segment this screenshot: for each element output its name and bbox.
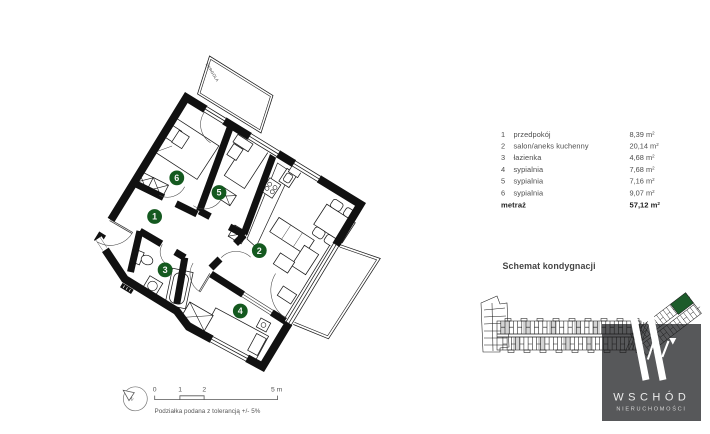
svg-text:20,14 m2: 20,14 m2 <box>630 142 660 151</box>
svg-text:Schemat kondygnacji: Schemat kondygnacji <box>503 261 596 271</box>
svg-text:5: 5 <box>501 177 505 186</box>
svg-text:9,07 m2: 9,07 m2 <box>630 188 656 197</box>
svg-text:1: 1 <box>152 212 157 222</box>
svg-text:sypialnia: sypialnia <box>514 165 544 174</box>
svg-text:Podziałka podana z tolerancją: Podziałka podana z tolerancją +/- 5% <box>155 408 261 415</box>
svg-text:3: 3 <box>163 265 168 275</box>
svg-text:1: 1 <box>178 386 182 393</box>
svg-text:NIERUCHOMOŚCI: NIERUCHOMOŚCI <box>616 405 686 413</box>
svg-text:6: 6 <box>174 173 179 183</box>
svg-text:łazienka: łazienka <box>514 153 543 162</box>
svg-text:4: 4 <box>501 165 505 174</box>
svg-text:sypialnia: sypialnia <box>514 188 544 197</box>
svg-text:6: 6 <box>501 188 505 197</box>
svg-text:1: 1 <box>501 130 505 139</box>
svg-text:8,39 m2: 8,39 m2 <box>630 130 656 139</box>
svg-text:7,68 m2: 7,68 m2 <box>630 165 656 174</box>
svg-text:przedpokój: przedpokój <box>514 130 551 139</box>
svg-text:57,12 m2: 57,12 m2 <box>630 201 661 210</box>
svg-text:salon/aneks kuchenny: salon/aneks kuchenny <box>514 142 589 151</box>
svg-text:4,68 m2: 4,68 m2 <box>630 153 656 162</box>
svg-text:WSCHÓD: WSCHÓD <box>613 391 690 404</box>
svg-text:2: 2 <box>202 386 206 393</box>
svg-text:4: 4 <box>238 306 243 316</box>
svg-text:5 m: 5 m <box>271 386 283 393</box>
svg-text:3: 3 <box>501 153 505 162</box>
svg-text:0: 0 <box>153 386 157 393</box>
svg-text:2: 2 <box>501 142 505 151</box>
svg-text:5: 5 <box>216 188 221 198</box>
svg-text:sypialnia: sypialnia <box>514 177 544 186</box>
svg-text:7,16 m2: 7,16 m2 <box>630 177 656 186</box>
svg-text:2: 2 <box>257 246 262 256</box>
svg-text:metraż: metraż <box>501 201 526 210</box>
